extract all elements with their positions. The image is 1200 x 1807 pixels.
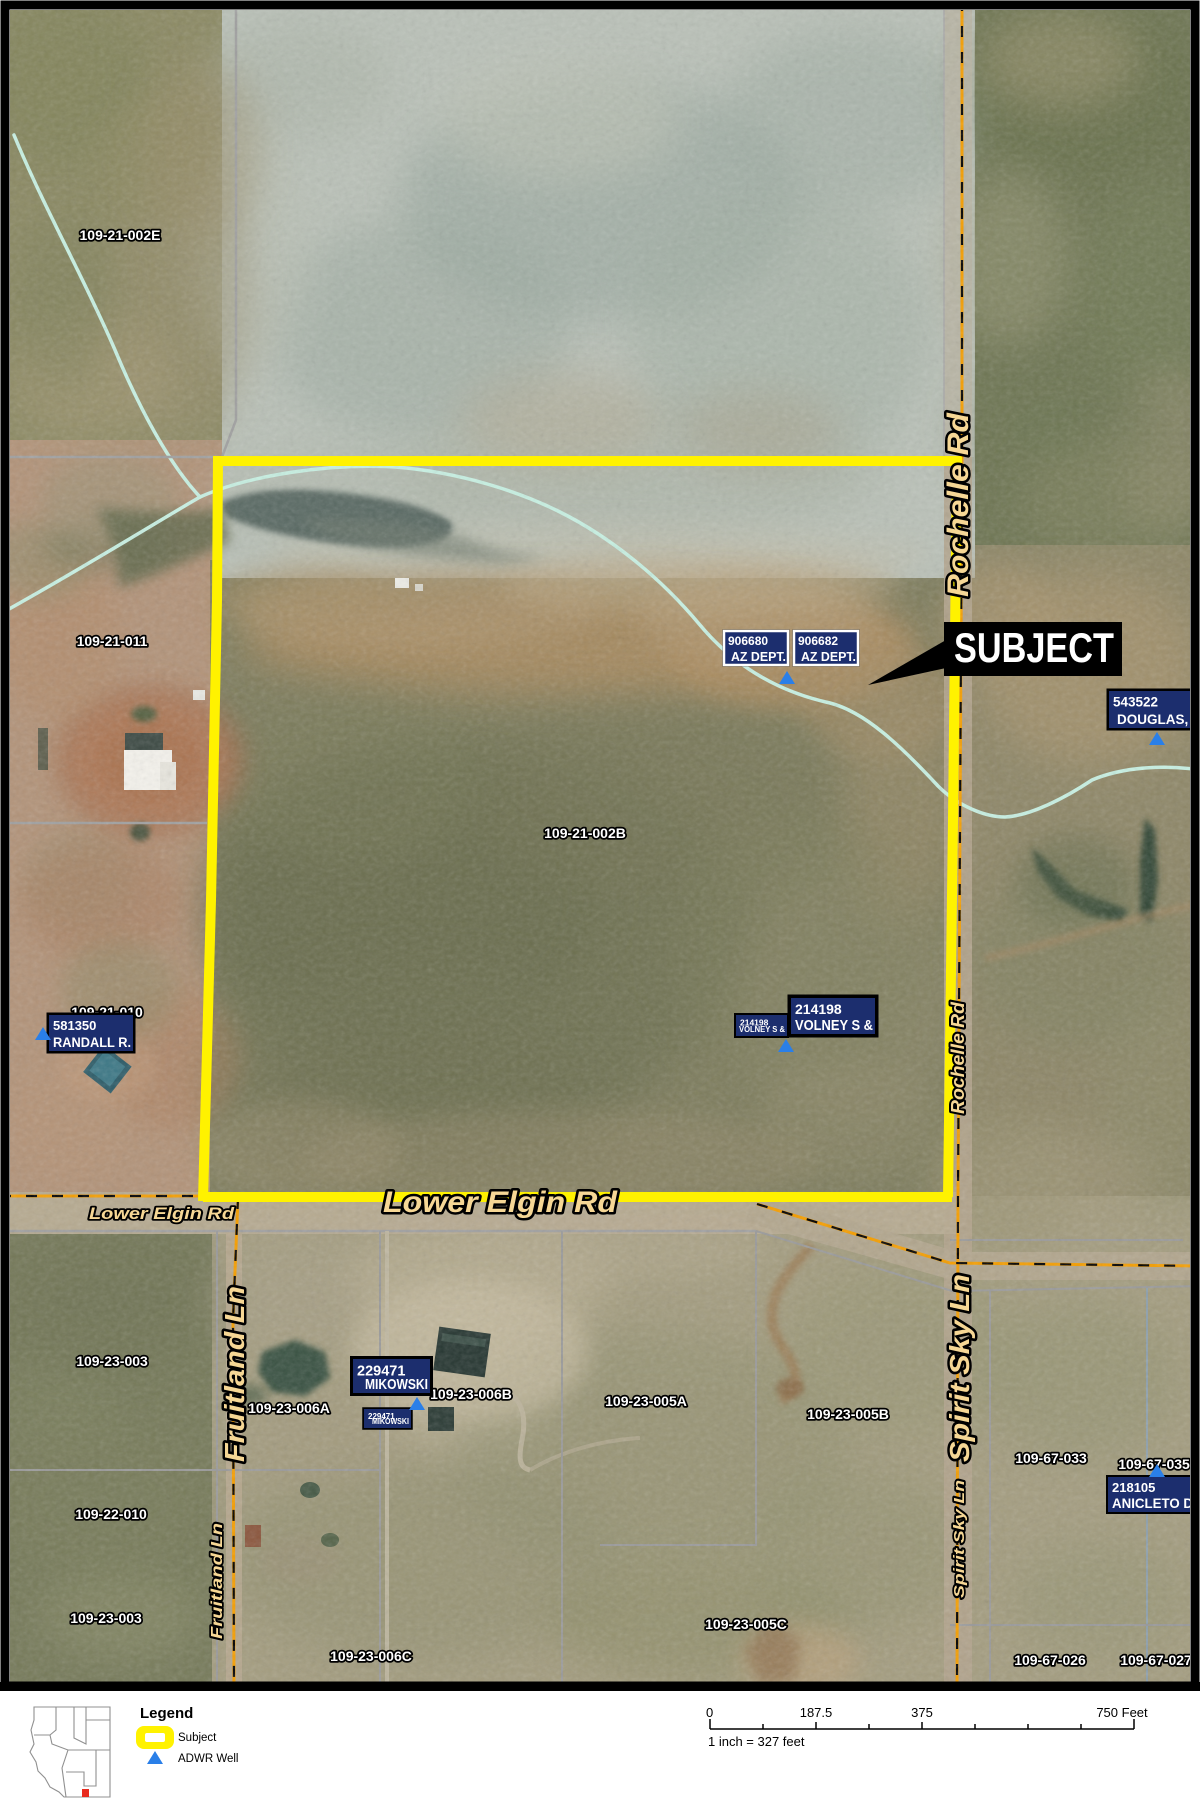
svg-text:906682: 906682 [798,634,838,648]
svg-text:Spirit Sky Ln: Spirit Sky Ln [944,1274,975,1462]
svg-text:543522: 543522 [1113,695,1158,710]
svg-text:AZ DEPT.: AZ DEPT. [731,650,786,664]
svg-text:109-23-003: 109-23-003 [76,1353,148,1369]
svg-text:VOLNEY S &: VOLNEY S & [739,1024,785,1034]
svg-text:SUBJECT: SUBJECT [954,624,1114,671]
svg-text:218105: 218105 [1112,1480,1155,1495]
svg-text:Rochelle Rd: Rochelle Rd [948,1001,968,1114]
svg-text:Subject: Subject [178,1732,217,1744]
svg-text:109-67-026: 109-67-026 [1014,1652,1086,1668]
svg-text:ANICLETO D: ANICLETO D [1112,1496,1193,1511]
svg-text:AZ DEPT.: AZ DEPT. [801,650,856,664]
svg-text:109-67-033: 109-67-033 [1015,1450,1087,1466]
svg-text:MIKOWSKI: MIKOWSKI [372,1417,409,1426]
svg-text:Rochelle Rd: Rochelle Rd [942,412,975,597]
svg-text:109-67-027: 109-67-027 [1120,1652,1192,1668]
svg-text:109-23-003: 109-23-003 [70,1610,142,1626]
svg-text:214198: 214198 [795,1001,842,1017]
svg-text:Spirit Sky Ln: Spirit Sky Ln [951,1480,968,1598]
svg-text:906680: 906680 [728,634,768,648]
svg-text:0: 0 [706,1705,713,1720]
svg-text:Lower Elgin Rd: Lower Elgin Rd [383,1186,618,1219]
svg-text:187.5: 187.5 [800,1705,833,1720]
svg-text:Lower Elgin Rd: Lower Elgin Rd [89,1204,235,1223]
svg-text:MIKOWSKI: MIKOWSKI [365,1376,428,1393]
svg-text:109-23-006B: 109-23-006B [430,1386,512,1402]
svg-text:750 Feet: 750 Feet [1096,1705,1148,1720]
svg-text:109-23-006C: 109-23-006C [330,1648,412,1664]
svg-text:109-21-011: 109-21-011 [77,633,148,649]
svg-text:581350: 581350 [53,1018,96,1033]
svg-text:109-23-005C: 109-23-005C [705,1616,787,1632]
svg-text:DOUGLAS,: DOUGLAS, [1117,712,1188,727]
svg-text:VOLNEY S &: VOLNEY S & [795,1018,873,1034]
svg-text:109-23-005A: 109-23-005A [605,1393,687,1409]
svg-text:375: 375 [911,1705,933,1720]
svg-text:1 inch = 327 feet: 1 inch = 327 feet [708,1734,805,1749]
svg-text:Legend: Legend [140,1705,193,1722]
svg-text:109-23-005B: 109-23-005B [807,1406,889,1422]
svg-text:109-23-006A: 109-23-006A [248,1400,330,1416]
svg-text:109-21-002E: 109-21-002E [80,227,161,243]
svg-text:Fruitland Ln: Fruitland Ln [219,1286,250,1462]
svg-text:RANDALL R.: RANDALL R. [53,1035,131,1050]
svg-text:109-22-010: 109-22-010 [75,1506,147,1522]
svg-text:ADWR Well: ADWR Well [178,1753,238,1765]
svg-text:109-21-002B: 109-21-002B [544,825,626,841]
svg-text:Fruitland Ln: Fruitland Ln [209,1523,226,1639]
